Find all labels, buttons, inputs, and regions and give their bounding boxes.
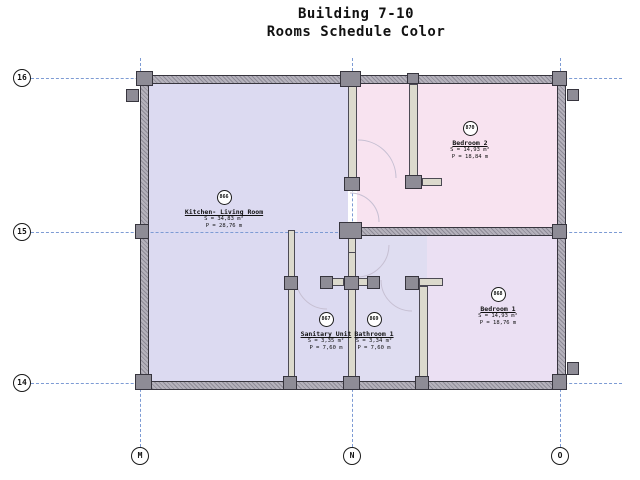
room-area: S = 3,34 m² (304, 338, 444, 345)
column-top-right (552, 71, 567, 86)
column-top-left (136, 71, 153, 86)
room-number: 869 (369, 317, 378, 322)
block-bathroom-door-r (405, 276, 419, 290)
grid-bubble-16: 16 (13, 69, 31, 87)
room-name: Bathroom 1 (304, 330, 444, 338)
room-number: 870 (465, 126, 474, 131)
grid-bubble-15: 15 (13, 223, 31, 241)
room-area: S = 14,93 m² (400, 147, 540, 154)
column-bottom-bedroom1 (415, 376, 429, 390)
room-number-badge: 866 (217, 190, 232, 205)
room-name: Kitchen- Living Room (154, 208, 294, 216)
block-bedroom2-end (405, 175, 422, 189)
room-perimeter: P = 18,76 m (428, 320, 568, 327)
column-left-grid15 (135, 224, 149, 239)
drawing-title: Building 7-10 Rooms Schedule Color (206, 5, 506, 41)
column-right-grid15 (552, 224, 567, 239)
grid-bubble-14: 14 (13, 374, 31, 392)
title-line-2: Rooms Schedule Color (206, 23, 506, 41)
column-right-bottom (552, 374, 567, 390)
room-number-badge: 868 (491, 287, 506, 302)
pilaster-right-top (567, 89, 579, 101)
room-number: 866 (219, 195, 228, 200)
partition-gridN-upper (348, 84, 357, 179)
partition-bedroom2-stub (422, 178, 442, 186)
room-area-bathroom-zone (356, 236, 427, 381)
room-number-badge: 869 (367, 312, 382, 327)
column-bottom-gridN (343, 376, 360, 390)
pilaster-left-top (126, 89, 139, 102)
block-gridN-upper-end (344, 177, 360, 191)
room-label-bedroom-1: 868 Bedroom 1 S = 14,93 m² P = 18,76 m (428, 287, 568, 327)
grid-label-O: O (558, 452, 563, 460)
room-label-bedroom-2: 870 Bedroom 2 S = 14,93 m² P = 18,84 m (400, 121, 540, 161)
column-left-bottom (135, 374, 152, 390)
pilaster-right-bottom (567, 362, 579, 375)
grid-label-N: N (350, 452, 355, 460)
grid-bubble-N: N (343, 447, 361, 465)
grid-label-16: 16 (17, 74, 27, 82)
column-gridN-grid15 (339, 222, 362, 239)
block-bathroom-door-l (367, 276, 380, 289)
room-number-badge: 870 (463, 121, 478, 136)
room-perimeter: P = 7,60 m (304, 345, 444, 352)
column-bottom-sanitary (283, 376, 297, 390)
grid-bubble-O: O (551, 447, 569, 465)
room-name: Bedroom 2 (400, 139, 540, 147)
room-area: S = 34,83 m² (154, 216, 294, 223)
title-line-1: Building 7-10 (206, 5, 506, 23)
block-sanitary-mid (284, 276, 298, 290)
floor-plan-canvas: Building 7-10 Rooms Schedule Color 16 15… (0, 0, 640, 480)
room-number: 868 (493, 292, 502, 297)
partition-bedroom1-stub (419, 278, 443, 286)
room-label-kitchen-living: 866 Kitchen- Living Room S = 34,83 m² P … (154, 190, 294, 230)
grid-bubble-M: M (131, 447, 149, 465)
grid-label-M: M (138, 452, 143, 460)
room-area: S = 14,93 m² (428, 313, 568, 320)
room-name: Bedroom 1 (428, 305, 568, 313)
wall-grid15-interior (345, 227, 566, 236)
block-gridN-mid (344, 276, 359, 290)
room-label-bathroom-1: 869 Bathroom 1 S = 3,34 m² P = 7,60 m (304, 312, 444, 352)
block-sanitary-door (320, 276, 333, 289)
column-top-mid (407, 73, 419, 84)
room-perimeter: P = 18,84 m (400, 154, 540, 161)
grid-label-15: 15 (17, 228, 27, 236)
partition-sanitary-left (288, 230, 295, 381)
column-top-gridN (340, 71, 361, 87)
room-perimeter: P = 28,76 m (154, 223, 294, 230)
grid-label-14: 14 (17, 379, 27, 387)
